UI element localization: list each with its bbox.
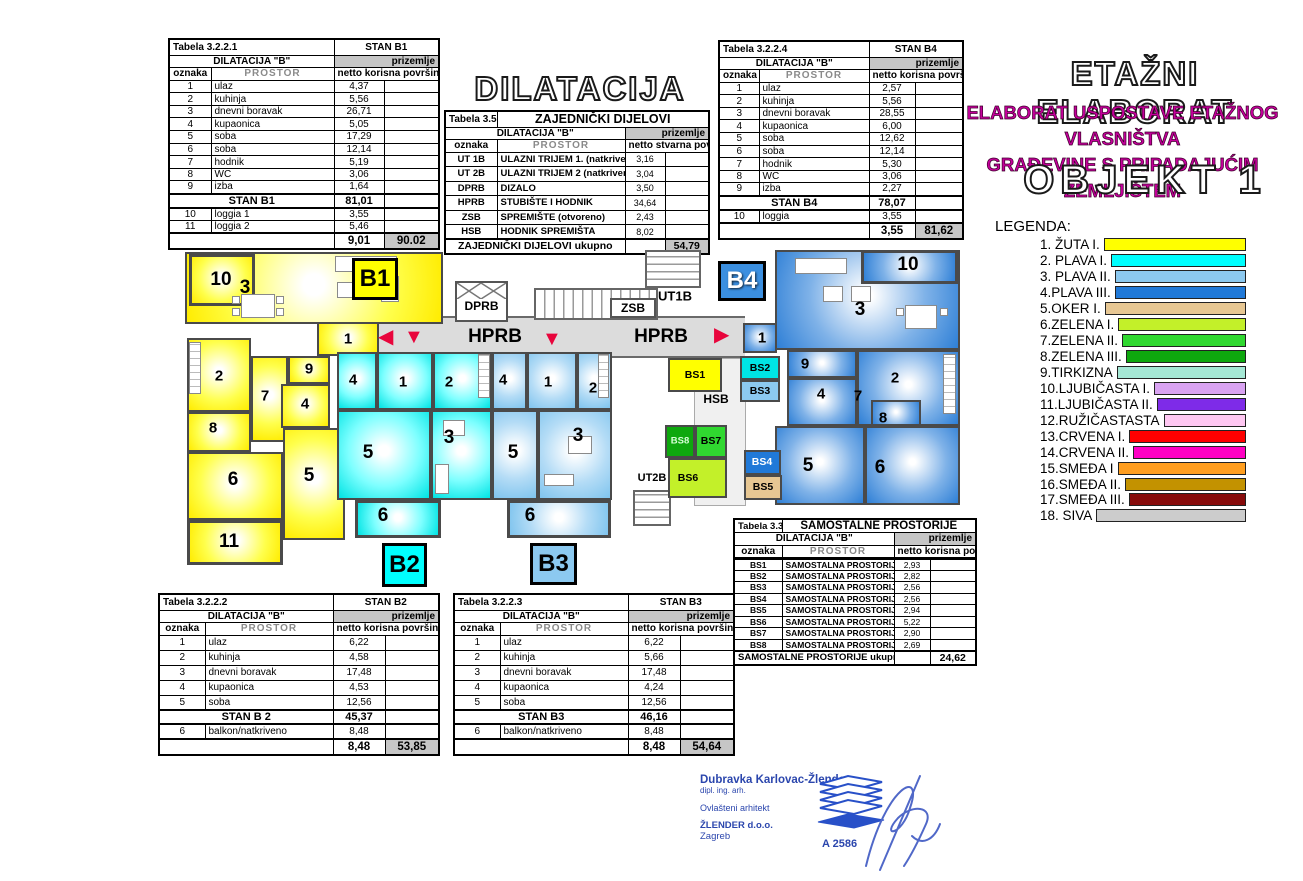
cell-oznaka: 2 bbox=[159, 650, 205, 665]
col-area: netto korisna površina bbox=[333, 623, 439, 636]
legend-item: 2. PLAVA I. bbox=[1040, 253, 1246, 269]
subtotal-value: 45,37 bbox=[333, 710, 385, 724]
stan-title: STAN B4 bbox=[869, 41, 963, 57]
room-label: 1 bbox=[399, 374, 407, 391]
legend-title: LEGENDA: bbox=[995, 218, 1071, 235]
total-row: 3,55 81,62 bbox=[719, 223, 963, 239]
cell-area: 3,50 bbox=[625, 181, 665, 196]
table-title: Tabela 3.2.2.2 bbox=[159, 594, 333, 610]
col-prostor: PROSTOR bbox=[782, 545, 894, 558]
cell-prostor: kupaonica bbox=[211, 118, 334, 131]
cell-prostor: kuhinja bbox=[205, 650, 333, 665]
cell-empty bbox=[915, 107, 963, 120]
table-stan-b4: Tabela 3.2.2.4 STAN B4 DILATACIJA "B" pr… bbox=[718, 40, 964, 240]
table-row: 1 ulaz 4,37 bbox=[169, 80, 439, 93]
cell-area: 2,27 bbox=[869, 183, 915, 196]
col-area: netto stvarna površina bbox=[625, 140, 709, 153]
cell-area: 3,06 bbox=[334, 168, 384, 181]
cell-empty bbox=[384, 168, 439, 181]
badge-b3: B3 bbox=[530, 543, 577, 585]
room-label: 8 bbox=[209, 420, 217, 437]
cell-oznaka: 7 bbox=[719, 158, 759, 171]
room-label: 4 bbox=[349, 372, 357, 389]
arrow-left-icon: ◀ bbox=[378, 327, 393, 347]
cell-prostor: kuhinja bbox=[500, 650, 628, 665]
table-row: 2 kuhinja 5,56 bbox=[169, 93, 439, 106]
cell-oznaka: ZSB bbox=[445, 210, 497, 225]
cell-area: 3,55 bbox=[334, 208, 384, 221]
cell-oznaka: 1 bbox=[454, 635, 500, 650]
table-title: Tabela 3.2.2.3 bbox=[454, 594, 628, 610]
cell-empty bbox=[665, 152, 709, 167]
elevator-label: DPRB bbox=[457, 299, 506, 313]
room-label: 7 bbox=[261, 388, 269, 405]
table-stan-b1: Tabela 3.2.2.1 STAN B1 DILATACIJA "B" pr… bbox=[168, 38, 440, 250]
stan-title: STAN B3 bbox=[628, 594, 734, 610]
cell-oznaka: 7 bbox=[169, 156, 211, 169]
dilatacija-label: DILATACIJA "B" bbox=[454, 610, 628, 623]
legend-color-swatch bbox=[1154, 382, 1246, 395]
cell-empty bbox=[385, 650, 439, 665]
room-label: 10 bbox=[210, 269, 231, 291]
cell-oznaka: 2 bbox=[719, 95, 759, 108]
table-row: 11 loggia 2 5,46 bbox=[169, 220, 439, 233]
table-row: 5 soba 12,56 bbox=[159, 695, 439, 710]
room-label: 6 bbox=[378, 505, 389, 527]
cell-oznaka: 8 bbox=[169, 168, 211, 181]
dilatacija-label: DILATACIJA "B" bbox=[445, 127, 625, 140]
cell-empty bbox=[385, 695, 439, 710]
table-row: BS2 SAMOSTALNA PROSTORIJA 2 2,82 bbox=[734, 570, 976, 582]
room bbox=[337, 410, 431, 500]
room-label: 1 bbox=[758, 330, 766, 347]
top-stairs bbox=[645, 250, 701, 288]
room bbox=[492, 352, 527, 410]
cell-oznaka: BS2 bbox=[734, 570, 782, 582]
subtotal-row: STAN B1 81,01 bbox=[169, 194, 439, 208]
cell-empty bbox=[915, 196, 963, 210]
furniture bbox=[276, 308, 284, 316]
cell-area: 12,56 bbox=[628, 695, 680, 710]
table-row: BS1 SAMOSTALNA PROSTORIJA 1 2,93 bbox=[734, 558, 976, 570]
furniture bbox=[795, 258, 847, 274]
cell-empty bbox=[680, 680, 734, 695]
cell-prostor: ulaz bbox=[759, 82, 869, 95]
cell-empty bbox=[719, 223, 869, 239]
cell-empty bbox=[454, 739, 628, 755]
cell-empty bbox=[915, 210, 963, 223]
table-row: BS3 SAMOSTALNA PROSTORIJA 3 2,56 bbox=[734, 582, 976, 594]
cell-prostor: ulaz bbox=[205, 635, 333, 650]
legend-item-label: 3. PLAVA II. bbox=[1040, 269, 1111, 284]
table-row: 4 kupaonica 6,00 bbox=[719, 120, 963, 133]
grand-total: 90.02 bbox=[384, 233, 439, 249]
room-label: 2 bbox=[589, 380, 597, 397]
stan-title: STAN B1 bbox=[334, 39, 439, 55]
cell-empty bbox=[930, 616, 976, 628]
stan-title: STAN B2 bbox=[333, 594, 439, 610]
subtitle-line-1: ELABORAT USPOSTAVE ETAŽNOG VLASNIŠTVA bbox=[965, 100, 1280, 152]
cell-prostor: SAMOSTALNA PROSTORIJA 3 bbox=[782, 582, 894, 594]
cell-oznaka: 9 bbox=[719, 183, 759, 196]
cell-area: 4,37 bbox=[334, 80, 384, 93]
cell-prostor: WC bbox=[759, 170, 869, 183]
room-label: 2 bbox=[891, 370, 899, 387]
storage-label-bs5: BS5 bbox=[753, 481, 773, 493]
total-row: 8,48 54,64 bbox=[454, 739, 734, 755]
total-value: 9,01 bbox=[334, 233, 384, 249]
cell-empty bbox=[384, 93, 439, 106]
cell-empty bbox=[384, 156, 439, 169]
table-row: 2 kuhinja 4,58 bbox=[159, 650, 439, 665]
cell-oznaka: 6 bbox=[719, 145, 759, 158]
furniture bbox=[276, 296, 284, 304]
footer-total: 24,62 bbox=[930, 651, 976, 665]
legend-item-label: 8.ZELENA III. bbox=[1040, 349, 1122, 364]
subtotal-label: STAN B3 bbox=[454, 710, 628, 724]
room-label: 9 bbox=[801, 356, 809, 373]
cell-area: 6,22 bbox=[333, 635, 385, 650]
cell-prostor: soba bbox=[211, 143, 334, 156]
storage-zsb: ZSB bbox=[610, 298, 656, 318]
cell-empty bbox=[384, 131, 439, 144]
cell-oznaka: HSB bbox=[445, 225, 497, 240]
cell-oznaka: HPRB bbox=[445, 196, 497, 211]
legend-item: 17.SMEĐA III. bbox=[1040, 492, 1246, 508]
subtotal-row: STAN B4 78,07 bbox=[719, 196, 963, 210]
cell-empty bbox=[384, 181, 439, 194]
cell-area: 8,02 bbox=[625, 225, 665, 240]
legend-item: 1. ŽUTA I. bbox=[1040, 237, 1246, 253]
legend-item: 5.OKER I. bbox=[1040, 301, 1246, 317]
cell-area: 17,48 bbox=[333, 665, 385, 680]
cell-empty bbox=[680, 710, 734, 724]
cell-prostor: soba bbox=[759, 145, 869, 158]
table-row: 3 dnevni boravak 17,48 bbox=[454, 665, 734, 680]
legend-color-swatch bbox=[1164, 414, 1246, 427]
legend-item: 4.PLAVA III. bbox=[1040, 285, 1246, 301]
cell-oznaka: BS7 bbox=[734, 628, 782, 640]
legend-item: 14.CRVENA II. bbox=[1040, 444, 1246, 460]
room-label: 5 bbox=[363, 442, 374, 464]
cell-oznaka: 5 bbox=[719, 133, 759, 146]
cell-prostor: soba bbox=[759, 133, 869, 146]
cell-oznaka: 11 bbox=[169, 220, 211, 233]
cell-empty bbox=[665, 210, 709, 225]
cell-prostor: WC bbox=[211, 168, 334, 181]
cell-empty bbox=[665, 181, 709, 196]
section-title: ZAJEDNIČKI DIJELOVI bbox=[497, 111, 709, 127]
footer-row: SAMOSTALNE PROSTORIJE ukupno 24,62 bbox=[734, 651, 976, 665]
cell-area: 5,22 bbox=[894, 616, 930, 628]
cell-prostor: soba bbox=[500, 695, 628, 710]
legend-item: 6.ZELENA I. bbox=[1040, 317, 1246, 333]
cell-prostor: kupaonica bbox=[205, 680, 333, 695]
legend-item: 7.ZELENA II. bbox=[1040, 333, 1246, 349]
floor-label: prizemlje bbox=[894, 533, 976, 546]
col-oznaka: oznaka bbox=[169, 68, 211, 81]
cell-area: 1,64 bbox=[334, 181, 384, 194]
cell-prostor: kupaonica bbox=[759, 120, 869, 133]
legend-item: 11.LJUBIČASTA II. bbox=[1040, 396, 1246, 412]
cell-empty bbox=[680, 695, 734, 710]
cell-area: 5,30 bbox=[869, 158, 915, 171]
cell-prostor: loggia 2 bbox=[211, 220, 334, 233]
room-label: 11 bbox=[219, 531, 239, 553]
arrow-down-icon: ▼ bbox=[404, 327, 424, 347]
corridor-label-hprb-left: HPRB bbox=[468, 326, 522, 348]
furniture bbox=[905, 305, 937, 329]
cell-area: 5,56 bbox=[334, 93, 384, 106]
legend-item: 13.CRVENA I. bbox=[1040, 428, 1246, 444]
table-row: 7 hodnik 5,30 bbox=[719, 158, 963, 171]
cell-oznaka: 4 bbox=[159, 680, 205, 695]
cell-area: 28,55 bbox=[869, 107, 915, 120]
arrow-right-icon: ▶ bbox=[714, 325, 729, 345]
table-row: 3 dnevni boravak 26,71 bbox=[169, 105, 439, 118]
cell-prostor: loggia 1 bbox=[211, 208, 334, 221]
legend-item: 3. PLAVA II. bbox=[1040, 269, 1246, 285]
total-value: 8,48 bbox=[628, 739, 680, 755]
legend-item-label: 7.ZELENA II. bbox=[1040, 333, 1118, 348]
room bbox=[187, 412, 251, 452]
cell-oznaka: BS3 bbox=[734, 582, 782, 594]
table-row: 1 ulaz 2,57 bbox=[719, 82, 963, 95]
section-title: SAMOSTALNE PROSTORIJE bbox=[782, 519, 976, 533]
apartment-b3: 4 1 2 5 3 6 bbox=[492, 352, 612, 540]
elevator-x-icon bbox=[457, 283, 506, 299]
dilatacija-label: DILATACIJA "B" bbox=[159, 610, 333, 623]
col-oznaka: oznaka bbox=[454, 623, 500, 636]
legend-item-label: 5.OKER I. bbox=[1040, 301, 1101, 316]
cell-area: 5,46 bbox=[334, 220, 384, 233]
cell-oznaka: 2 bbox=[454, 650, 500, 665]
table-row: 8 WC 3,06 bbox=[169, 168, 439, 181]
cell-oznaka: 1 bbox=[719, 82, 759, 95]
cell-prostor: kuhinja bbox=[759, 95, 869, 108]
col-area: netto korisna površina bbox=[628, 623, 734, 636]
col-oznaka: oznaka bbox=[734, 545, 782, 558]
table-zajednicki: Tabela 3.5.5. ZAJEDNIČKI DIJELOVI DILATA… bbox=[444, 110, 710, 255]
apartment-b2: 4 1 2 5 3 6 bbox=[337, 352, 492, 540]
table-row: 2 kuhinja 5,56 bbox=[719, 95, 963, 108]
legend-color-swatch bbox=[1133, 446, 1246, 459]
legend-item-label: 11.LJUBIČASTA II. bbox=[1040, 397, 1153, 412]
badge-b2: B2 bbox=[382, 543, 427, 587]
table-row: HSB HODNIK SPREMIŠTA 8,02 bbox=[445, 225, 709, 240]
corridor-label-hsb: HSB bbox=[703, 392, 728, 406]
table-row: BS4 SAMOSTALNA PROSTORIJA 4 2,56 bbox=[734, 593, 976, 605]
total-value: 3,55 bbox=[869, 223, 915, 239]
cell-prostor: SAMOSTALNA PROSTORIJA 5 bbox=[782, 605, 894, 617]
badge-b1: B1 bbox=[352, 258, 398, 300]
subtotal-label: STAN B 2 bbox=[159, 710, 333, 724]
room-label: 9 bbox=[305, 361, 313, 378]
cell-prostor: SAMOSTALNA PROSTORIJA 8 bbox=[782, 639, 894, 651]
cell-prostor: hodnik bbox=[211, 156, 334, 169]
cell-oznaka: DPRB bbox=[445, 181, 497, 196]
legend-item-label: 10.LJUBIČASTA I. bbox=[1040, 381, 1150, 396]
cell-prostor: ulaz bbox=[211, 80, 334, 93]
table-row: BS7 SAMOSTALNA PROSTORIJA 7 2,90 bbox=[734, 628, 976, 640]
cell-empty bbox=[894, 651, 930, 665]
grand-total: 81,62 bbox=[915, 223, 963, 239]
cell-empty bbox=[930, 570, 976, 582]
cell-prostor: ULAZNI TRIJEM 2 (natkriveno) bbox=[497, 167, 625, 182]
kitchen-counter bbox=[189, 342, 201, 394]
cell-area: 3,16 bbox=[625, 152, 665, 167]
room-label: 3 bbox=[573, 425, 584, 447]
col-oznaka: oznaka bbox=[719, 70, 759, 83]
cell-prostor: SAMOSTALNA PROSTORIJA 7 bbox=[782, 628, 894, 640]
grand-total: 53,85 bbox=[385, 739, 439, 755]
legend-item-label: 4.PLAVA III. bbox=[1040, 285, 1111, 300]
kitchen-counter bbox=[943, 354, 956, 414]
table-row: DPRB DIZALO 3,50 bbox=[445, 181, 709, 196]
cell-area: 5,56 bbox=[869, 95, 915, 108]
col-prostor: PROSTOR bbox=[759, 70, 869, 83]
cell-oznaka: 5 bbox=[454, 695, 500, 710]
cell-oznaka: BS4 bbox=[734, 593, 782, 605]
table-row: 1 ulaz 6,22 bbox=[159, 635, 439, 650]
cell-area: 34,64 bbox=[625, 196, 665, 211]
cell-oznaka: 9 bbox=[169, 181, 211, 194]
cell-area: 4,58 bbox=[333, 650, 385, 665]
cell-empty bbox=[915, 158, 963, 171]
room-label: 5 bbox=[508, 442, 519, 464]
floor-label: prizemlje bbox=[334, 55, 439, 68]
cell-area: 3,55 bbox=[869, 210, 915, 223]
cell-empty bbox=[665, 167, 709, 182]
cell-empty bbox=[384, 143, 439, 156]
cell-oznaka: BS5 bbox=[734, 605, 782, 617]
cell-area: 2,90 bbox=[894, 628, 930, 640]
cell-oznaka: BS8 bbox=[734, 639, 782, 651]
cell-area: 12,56 bbox=[333, 695, 385, 710]
room bbox=[775, 426, 865, 505]
cell-empty bbox=[665, 196, 709, 211]
page: { "titles": { "dilatacija_big": "DILATAC… bbox=[0, 0, 1303, 881]
room-label: 2 bbox=[445, 374, 453, 391]
cell-prostor: SAMOSTALNA PROSTORIJA 1 bbox=[782, 558, 894, 570]
room-label: 5 bbox=[304, 465, 315, 487]
total-row: 8,48 53,85 bbox=[159, 739, 439, 755]
cell-oznaka: 4 bbox=[719, 120, 759, 133]
table-row: 10 loggia 3,55 bbox=[719, 210, 963, 223]
subtotal-value: 46,16 bbox=[628, 710, 680, 724]
col-area: netto korisna površina bbox=[334, 68, 439, 81]
kitchen-counter bbox=[478, 354, 490, 398]
subtotal-value: 81,01 bbox=[334, 194, 384, 208]
cell-oznaka: 1 bbox=[169, 80, 211, 93]
table-row: 9 izba 2,27 bbox=[719, 183, 963, 196]
cell-oznaka: UT 1B bbox=[445, 152, 497, 167]
cell-empty bbox=[169, 233, 334, 249]
cell-prostor: soba bbox=[205, 695, 333, 710]
table-row: UT 2B ULAZNI TRIJEM 2 (natkriveno) 3,04 bbox=[445, 167, 709, 182]
total-value: 8,48 bbox=[333, 739, 385, 755]
furniture bbox=[823, 286, 843, 302]
cell-empty bbox=[680, 724, 734, 739]
table-row: HPRB STUBIŠTE I HODNIK 34,64 bbox=[445, 196, 709, 211]
storage-label-bs3: BS3 bbox=[750, 385, 770, 397]
furniture bbox=[544, 474, 574, 486]
cell-empty bbox=[915, 82, 963, 95]
legend-item-label: 17.SMEĐA III. bbox=[1040, 492, 1125, 507]
cell-oznaka: BS1 bbox=[734, 558, 782, 570]
table-row: BS8 SAMOSTALNA PROSTORIJA 8 2,69 bbox=[734, 639, 976, 651]
room-label: 3 bbox=[444, 427, 455, 449]
table-row: UT 1B ULAZNI TRIJEM 1. (natkriveno) 3,16 bbox=[445, 152, 709, 167]
subtotal-value: 78,07 bbox=[869, 196, 915, 210]
cell-empty bbox=[384, 220, 439, 233]
table-row: 3 dnevni boravak 28,55 bbox=[719, 107, 963, 120]
subtotal-row: STAN B 2 45,37 bbox=[159, 710, 439, 724]
cell-area: 2,57 bbox=[869, 82, 915, 95]
subtotal-row: STAN B3 46,16 bbox=[454, 710, 734, 724]
cell-area: 8,48 bbox=[333, 724, 385, 739]
cell-area: 2,94 bbox=[894, 605, 930, 617]
kitchen-counter bbox=[598, 354, 609, 398]
cell-prostor: izba bbox=[759, 183, 869, 196]
table-row: 6 soba 12,14 bbox=[169, 143, 439, 156]
legend-item: 18. SIVA bbox=[1040, 508, 1246, 524]
legend-item-label: 13.CRVENA I. bbox=[1040, 429, 1125, 444]
cell-empty bbox=[665, 225, 709, 240]
legend-color-swatch bbox=[1125, 478, 1246, 491]
legend-color-swatch bbox=[1104, 238, 1246, 251]
cell-prostor: SPREMIŠTE (otvoreno) bbox=[497, 210, 625, 225]
cell-prostor: dnevni boravak bbox=[205, 665, 333, 680]
room-label: 4 bbox=[499, 372, 507, 389]
storage-label-bs2: BS2 bbox=[750, 362, 770, 374]
subtotal-label: STAN B4 bbox=[719, 196, 869, 210]
cell-empty bbox=[930, 605, 976, 617]
table-row: 5 soba 12,56 bbox=[454, 695, 734, 710]
cell-empty bbox=[930, 582, 976, 594]
room-label: 5 bbox=[803, 455, 814, 477]
table-row: 3 dnevni boravak 17,48 bbox=[159, 665, 439, 680]
cell-area: 2,69 bbox=[894, 639, 930, 651]
legend-item: 8.ZELENA III. bbox=[1040, 349, 1246, 365]
cell-prostor: loggia bbox=[759, 210, 869, 223]
cell-oznaka: 6 bbox=[169, 143, 211, 156]
cell-empty bbox=[680, 650, 734, 665]
legend-item-label: 18. SIVA bbox=[1040, 508, 1092, 523]
cell-area: 17,29 bbox=[334, 131, 384, 144]
table-stan-b3: Tabela 3.2.2.3 STAN B3 DILATACIJA "B" pr… bbox=[453, 593, 735, 756]
legend-color-swatch bbox=[1129, 493, 1246, 506]
entry-label-ut2b: UT2B bbox=[638, 472, 667, 484]
cell-prostor: SAMOSTALNA PROSTORIJA 6 bbox=[782, 616, 894, 628]
bottom-stairs bbox=[633, 490, 671, 526]
room-label: 1 bbox=[544, 374, 552, 391]
legend-item: 12.RUŽIČASTASTA bbox=[1040, 412, 1246, 428]
cell-area: 12,14 bbox=[869, 145, 915, 158]
col-prostor: PROSTOR bbox=[205, 623, 333, 636]
table-row: BS6 SAMOSTALNA PROSTORIJA 6 5,22 bbox=[734, 616, 976, 628]
cell-prostor: HODNIK SPREMIŠTA bbox=[497, 225, 625, 240]
cell-prostor: STUBIŠTE I HODNIK bbox=[497, 196, 625, 211]
legend-color-swatch bbox=[1118, 318, 1246, 331]
cell-oznaka: 3 bbox=[159, 665, 205, 680]
cell-prostor: ULAZNI TRIJEM 1. (natkriveno) bbox=[497, 152, 625, 167]
total-row: 9,01 90.02 bbox=[169, 233, 439, 249]
legend-item-label: 15.SMEĐA I bbox=[1040, 461, 1114, 476]
table-row: 5 soba 12,62 bbox=[719, 133, 963, 146]
legend-item: 15.SMEĐA I bbox=[1040, 460, 1246, 476]
dilatacija-label: DILATACIJA "B" bbox=[734, 533, 894, 546]
